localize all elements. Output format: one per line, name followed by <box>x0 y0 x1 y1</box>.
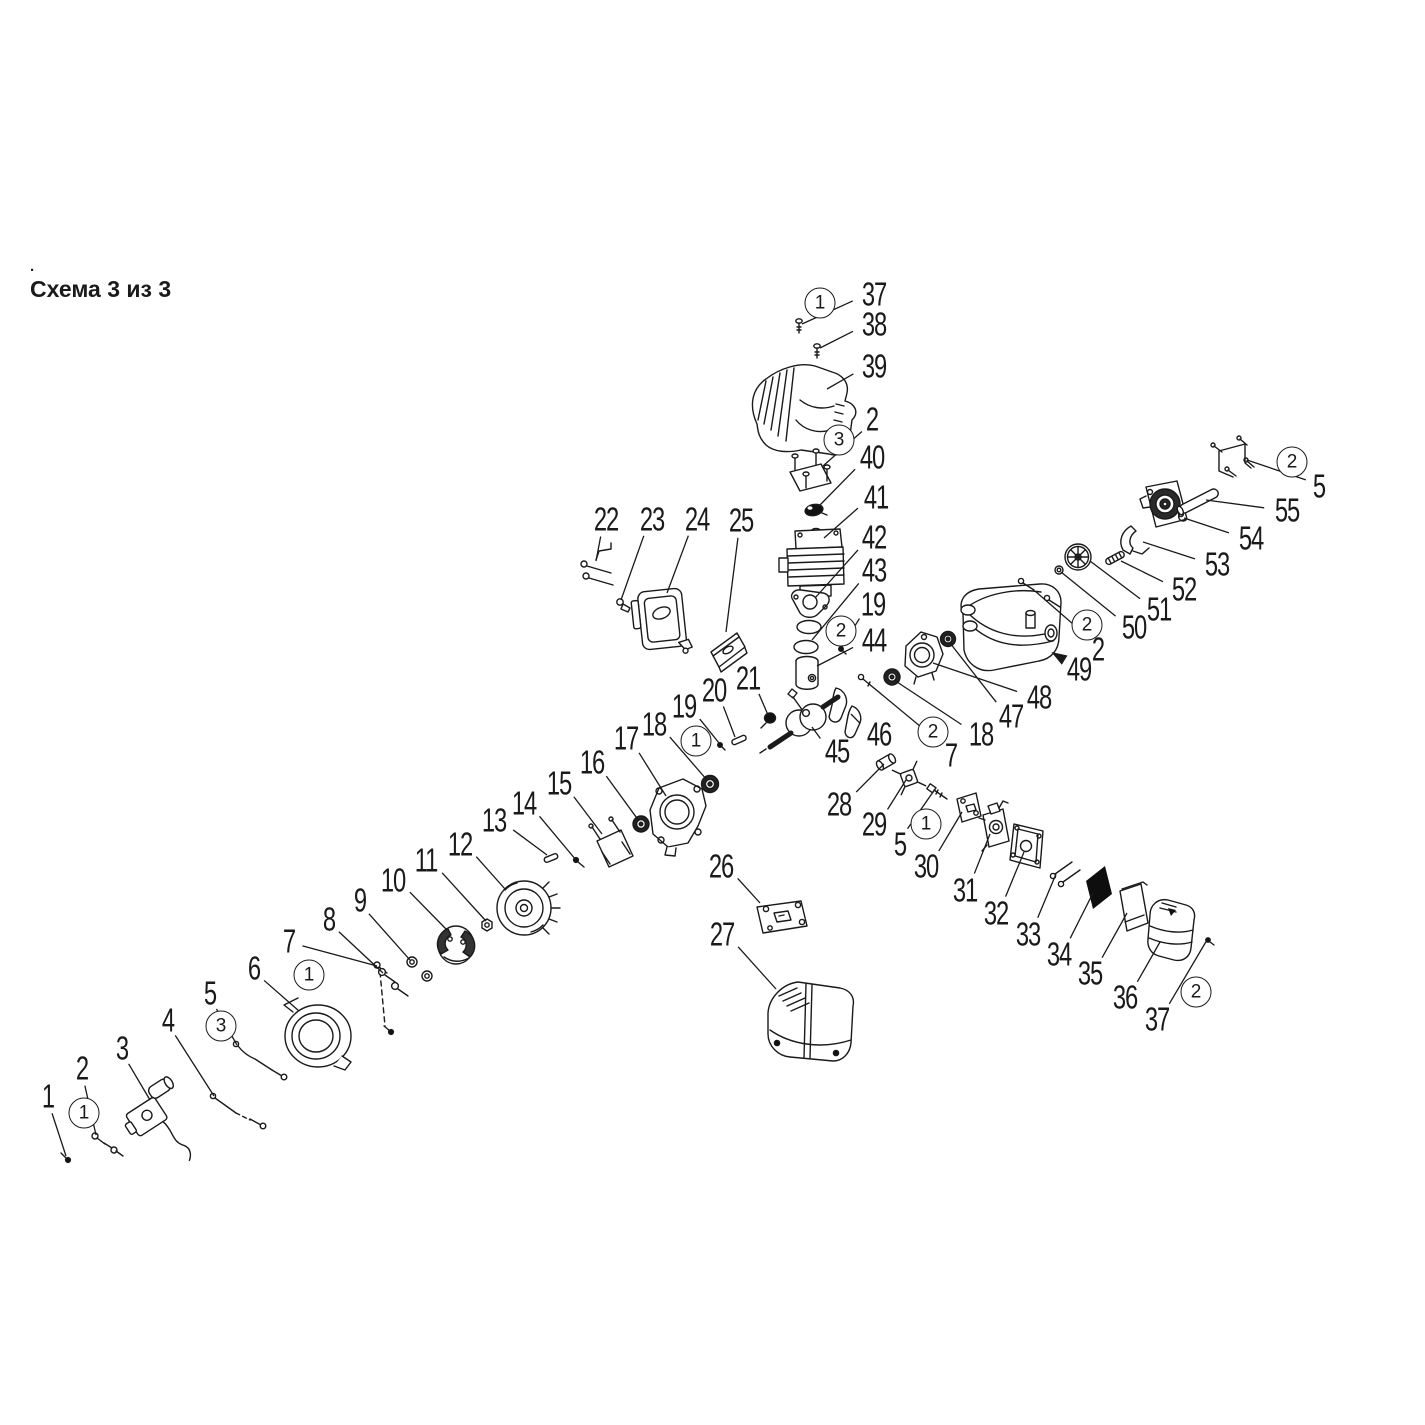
qty-badge-1: 1 <box>69 1098 100 1129</box>
part-label-9: 9 <box>354 884 366 917</box>
qty-badge-2: 2 <box>1072 610 1103 641</box>
part-label-12: 12 <box>448 828 472 861</box>
part-label-37: 37 <box>1145 1003 1169 1036</box>
qty-badge-1: 1 <box>911 809 942 840</box>
part-label-43: 43 <box>862 554 886 587</box>
qty-badge-3: 3 <box>824 425 855 456</box>
part-label-18: 18 <box>969 718 993 751</box>
part-label-4: 4 <box>162 1004 174 1037</box>
part-label-49: 49 <box>1067 653 1091 686</box>
part-label-5: 5 <box>894 828 906 861</box>
part-label-38: 38 <box>862 308 886 341</box>
part-label-8: 8 <box>323 903 335 936</box>
qty-badge-3: 3 <box>206 1011 237 1042</box>
part-label-30: 30 <box>914 850 938 883</box>
qty-badge-1: 1 <box>681 726 712 757</box>
part-label-29: 29 <box>862 808 886 841</box>
part-label-26: 26 <box>709 850 733 883</box>
part-label-36: 36 <box>1113 981 1137 1014</box>
part-label-50: 50 <box>1122 611 1146 644</box>
part-label-39: 39 <box>862 350 886 383</box>
qty-badge-2: 2 <box>1277 447 1308 478</box>
part-label-15: 15 <box>547 767 571 800</box>
part-label-28: 28 <box>827 788 851 821</box>
part-label-42: 42 <box>862 521 886 554</box>
part-label-21: 21 <box>736 662 760 695</box>
part-label-20: 20 <box>702 674 726 707</box>
part-label-46: 46 <box>867 718 891 751</box>
part-label-18: 18 <box>642 708 666 741</box>
part-label-52: 52 <box>1172 573 1196 606</box>
part-label-19: 19 <box>861 588 885 621</box>
part-label-55: 55 <box>1275 494 1299 527</box>
part-label-23: 23 <box>640 503 664 536</box>
qty-badge-1: 1 <box>294 960 325 991</box>
part-label-33: 33 <box>1016 918 1040 951</box>
part-label-47: 47 <box>999 700 1023 733</box>
qty-badge-2: 2 <box>918 717 949 748</box>
part-label-27: 27 <box>710 918 734 951</box>
qty-badge-2: 2 <box>826 616 857 647</box>
part-label-32: 32 <box>984 897 1008 930</box>
part-label-5: 5 <box>1313 470 1325 503</box>
part-label-53: 53 <box>1205 548 1229 581</box>
part-label-25: 25 <box>729 504 753 537</box>
part-label-6: 6 <box>248 952 260 985</box>
part-label-1: 1 <box>42 1080 54 1113</box>
part-label-2: 2 <box>866 403 878 436</box>
part-label-54: 54 <box>1239 522 1263 555</box>
part-label-2: 2 <box>76 1052 88 1085</box>
part-label-19: 19 <box>672 690 696 723</box>
part-label-10: 10 <box>381 864 405 897</box>
part-label-7: 7 <box>945 739 957 772</box>
part-label-16: 16 <box>580 746 604 779</box>
part-label-7: 7 <box>283 925 295 958</box>
part-label-24: 24 <box>685 503 709 536</box>
part-label-34: 34 <box>1047 938 1071 971</box>
part-label-22: 22 <box>594 503 618 536</box>
part-label-5: 5 <box>204 977 216 1010</box>
qty-badge-2: 2 <box>1181 977 1212 1008</box>
part-label-48: 48 <box>1027 681 1051 714</box>
part-label-35: 35 <box>1078 957 1102 990</box>
part-label-14: 14 <box>512 787 536 820</box>
part-label-41: 41 <box>864 481 888 514</box>
part-label-31: 31 <box>953 874 977 907</box>
part-label-44: 44 <box>862 624 886 657</box>
part-label-11: 11 <box>415 844 438 877</box>
part-label-40: 40 <box>860 441 884 474</box>
part-label-3: 3 <box>116 1032 128 1065</box>
exploded-parts-diagram: . Схема 3 из 3 <box>0 0 1425 1425</box>
part-label-17: 17 <box>614 722 638 755</box>
part-label-51: 51 <box>1147 593 1171 626</box>
part-label-13: 13 <box>482 804 506 837</box>
labels-layer: 1234567891011121314151617181920212223242… <box>0 0 1425 1425</box>
qty-badge-1: 1 <box>805 288 836 319</box>
part-label-45: 45 <box>825 735 849 768</box>
